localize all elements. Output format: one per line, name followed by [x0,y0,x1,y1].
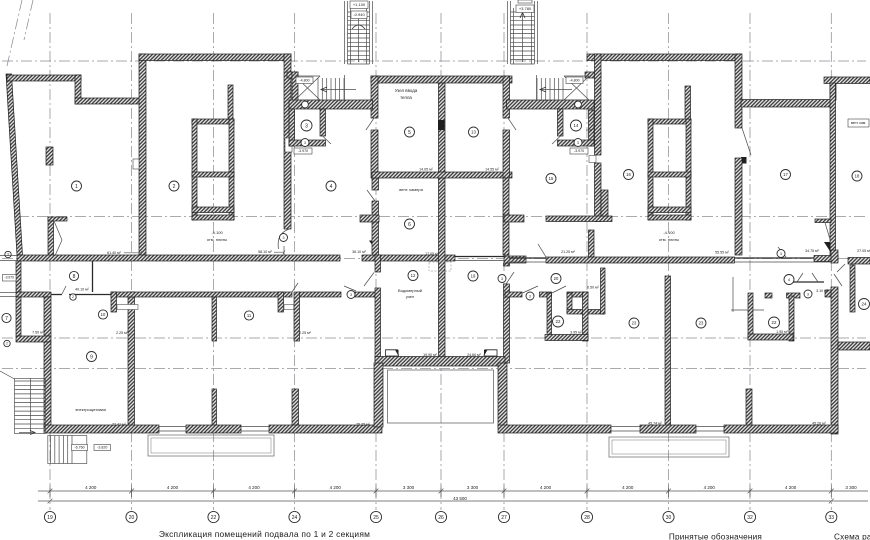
svg-text:-4.100: -4.100 [663,230,675,235]
svg-text:4 200: 4 200 [785,485,797,490]
svg-text:3: 3 [305,123,308,129]
svg-text:45.74 м²: 45.74 м² [648,422,662,426]
svg-text:34.75 м²: 34.75 м² [805,249,819,253]
svg-text:отм. плиты: отм. плиты [207,237,228,242]
svg-text:22.41 м²: 22.41 м² [112,423,126,427]
svg-text:3: 3 [7,253,9,257]
svg-text:15: 15 [549,176,554,181]
svg-text:24: 24 [292,515,298,521]
svg-text:4 200: 4 200 [167,485,179,490]
svg-text:вент. кам.: вент. кам. [851,121,866,125]
svg-text:-3.970: -3.970 [298,149,308,153]
svg-text:1: 1 [75,184,78,190]
svg-text:6: 6 [408,222,411,228]
svg-text:2.25 м²: 2.25 м² [116,331,128,335]
svg-text:2: 2 [173,184,176,190]
svg-text:-6.760: -6.760 [74,446,84,450]
svg-text:+3.780: +3.780 [519,6,532,11]
svg-text:21.25 м²: 21.25 м² [561,250,575,254]
svg-text:2: 2 [72,295,74,299]
svg-text:Принятые обозначения: Принятые обозначения [669,533,762,540]
svg-text:тепла: тепла [400,95,412,100]
svg-text:4 200: 4 200 [85,485,97,490]
svg-text:3 300: 3 300 [845,485,857,490]
svg-text:17.05 м²: 17.05 м² [425,252,439,256]
svg-text:58.10 м²: 58.10 м² [258,250,272,254]
svg-text:Схема располож: Схема располож [834,533,870,540]
svg-text:Узел ввода: Узел ввода [395,88,418,93]
svg-text:10: 10 [101,312,106,317]
svg-text:4 200: 4 200 [248,485,260,490]
svg-text:18: 18 [855,174,860,179]
svg-text:3.95 м²: 3.95 м² [570,331,582,335]
svg-text:7: 7 [5,316,8,322]
svg-text:25: 25 [373,515,379,521]
svg-text:27: 27 [501,515,507,521]
svg-text:40.10 м²: 40.10 м² [75,288,89,292]
svg-text:0.50 м²: 0.50 м² [587,286,599,290]
svg-text:19.90 м²: 19.90 м² [423,353,437,357]
svg-text:43 500: 43 500 [453,496,467,501]
svg-text:20: 20 [554,276,559,281]
svg-text:28: 28 [584,515,590,521]
svg-text:электрощитовая: электрощитовая [75,407,106,412]
svg-text:16: 16 [626,172,631,177]
svg-text:13: 13 [471,130,476,135]
svg-text:23: 23 [699,321,704,326]
svg-text:22: 22 [556,319,561,324]
svg-text:3: 3 [780,252,782,256]
svg-text:Экспликация помещений подвала: Экспликация помещений подвала по 1 и 2 с… [159,529,370,539]
svg-text:3: 3 [529,294,531,298]
svg-text:4 200: 4 200 [622,485,634,490]
svg-text:-4.100: -4.100 [211,230,223,235]
svg-text:3.10 м²: 3.10 м² [816,289,828,293]
svg-text:36.10 м²: 36.10 м² [352,250,366,254]
svg-text:19: 19 [471,274,476,279]
svg-text:-3.970: -3.970 [574,149,584,153]
svg-text:23: 23 [632,321,637,326]
svg-text:3 300: 3 300 [403,485,415,490]
svg-text:7.50 м²: 7.50 м² [32,331,44,335]
svg-text:61.40 м²: 61.40 м² [107,251,121,255]
svg-text:2.25 м²: 2.25 м² [299,331,311,335]
svg-text:-3.820: -3.820 [97,446,107,450]
svg-text:-4.800: -4.800 [299,78,309,82]
svg-text:4 200: 4 200 [540,485,552,490]
svg-text:12: 12 [411,273,416,278]
svg-text:3: 3 [807,292,809,296]
svg-text:24: 24 [862,302,867,307]
svg-text:4 200: 4 200 [330,485,342,490]
svg-text:2: 2 [6,342,8,346]
svg-text:22: 22 [211,515,217,521]
svg-text:33: 33 [829,515,835,521]
svg-text:9: 9 [90,354,93,360]
svg-text:3: 3 [501,277,503,281]
svg-text:14.55 м²: 14.55 м² [485,168,499,172]
svg-text:узел: узел [406,294,415,299]
svg-text:3: 3 [577,141,579,145]
svg-text:4: 4 [330,184,333,190]
svg-text:17: 17 [783,172,788,177]
svg-text:Водомерный: Водомерный [398,288,422,293]
svg-text:30: 30 [666,515,672,521]
svg-text:вент. камера: вент. камера [399,187,423,192]
svg-text:8: 8 [73,274,76,280]
svg-text:26: 26 [438,515,444,521]
svg-text:4 200: 4 200 [704,485,716,490]
svg-text:3: 3 [283,236,285,240]
svg-text:11: 11 [247,313,252,318]
svg-text:25.25 м²: 25.25 м² [356,423,370,427]
svg-text:32: 32 [747,515,753,521]
svg-text:24.60 м²: 24.60 м² [467,353,481,357]
svg-text:2.05: 2.05 [586,128,592,132]
svg-text:3: 3 [304,141,306,145]
svg-text:3 300: 3 300 [467,485,479,490]
svg-text:19: 19 [47,515,53,521]
svg-text:20: 20 [129,515,135,521]
svg-text:+1.100: +1.100 [353,2,366,7]
svg-text:55.55 м²: 55.55 м² [715,251,729,255]
svg-text:-3.970: -3.970 [4,276,14,280]
svg-text:14.05 м²: 14.05 м² [419,168,433,172]
svg-text:1.95 м²: 1.95 м² [776,330,788,334]
svg-text:22: 22 [772,320,777,325]
svg-text:45.26 м²: 45.26 м² [812,422,826,426]
svg-text:27.05 м²: 27.05 м² [857,249,870,253]
svg-text:-0.940: -0.940 [353,12,365,17]
svg-text:14: 14 [574,123,579,128]
svg-text:5: 5 [408,130,411,136]
svg-text:-4.800: -4.800 [569,78,579,82]
svg-text:3: 3 [350,293,352,297]
svg-text:отм. плиты: отм. плиты [659,237,680,242]
